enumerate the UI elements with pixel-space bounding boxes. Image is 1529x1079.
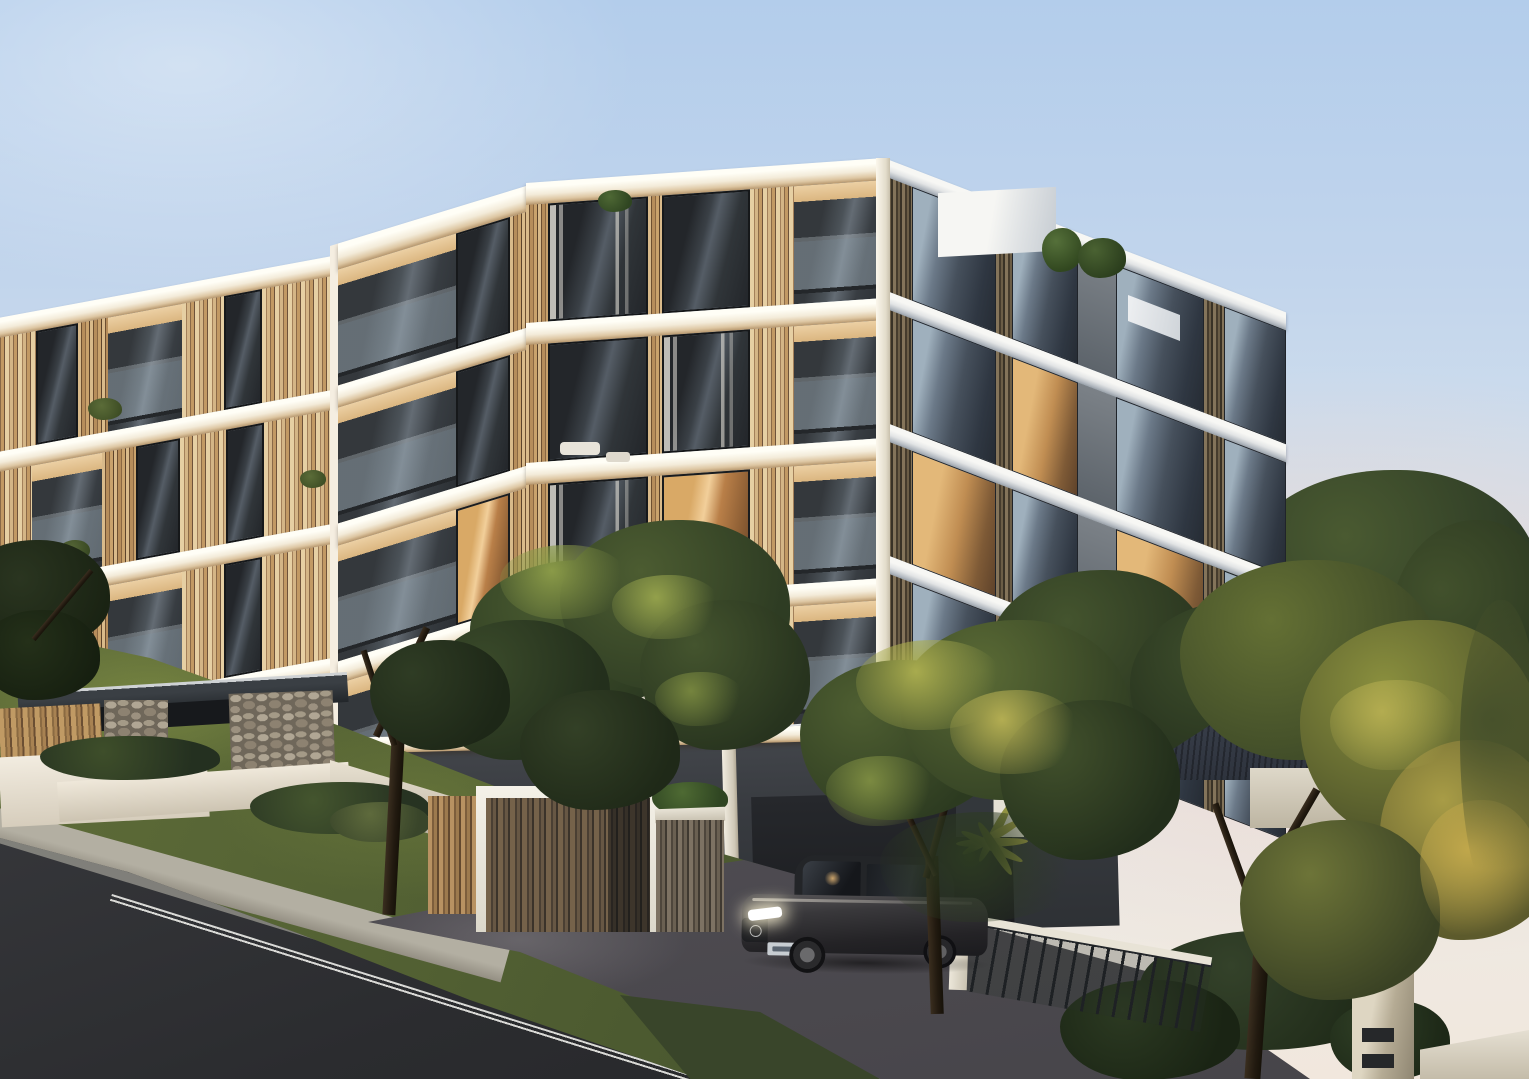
rooftop-shrub	[1042, 228, 1082, 272]
window	[224, 557, 262, 678]
window	[456, 217, 510, 350]
architectural-render	[0, 0, 1529, 1079]
balcony-plant	[88, 398, 122, 420]
balcony	[794, 460, 884, 584]
window-with-curtains	[662, 329, 750, 453]
gate-frame	[476, 786, 660, 932]
timber-batten-screen	[0, 331, 36, 453]
balcony-plant	[300, 470, 326, 488]
tree-canopy-sunlit	[500, 545, 630, 619]
gate-open-gap	[608, 798, 650, 932]
shrub-row	[40, 736, 220, 780]
tree-canopy-sunlit	[655, 672, 745, 726]
timber-batten-screen	[996, 351, 1012, 471]
window	[136, 438, 180, 560]
window	[456, 355, 510, 488]
timber-fence	[428, 796, 480, 914]
grass-tuft	[330, 802, 430, 842]
timber-batten-screen	[102, 446, 136, 566]
tree-canopy	[370, 640, 510, 750]
timber-batten-screen	[182, 564, 224, 686]
timber-batten-screen	[750, 186, 794, 307]
tree-canopy-sunlit	[950, 690, 1080, 774]
timber-batten-screen	[526, 343, 548, 463]
tree-canopy	[1240, 820, 1440, 1000]
timber-batten-screen	[1204, 431, 1224, 553]
timber-batten-screen	[750, 326, 794, 447]
window	[36, 323, 78, 445]
timber-batten-screen	[996, 483, 1012, 603]
window	[224, 289, 262, 410]
balcony	[794, 320, 884, 444]
letterbox-slot	[1362, 1054, 1394, 1068]
slat-fence-panel	[656, 820, 724, 932]
wall-panel	[1078, 382, 1116, 511]
car-headlight	[747, 906, 782, 921]
tree-canopy-sunlit	[1330, 680, 1460, 770]
balcony	[794, 180, 884, 304]
roof-access-box	[938, 187, 1056, 257]
tree-canopy-dark	[1460, 600, 1529, 900]
tree-canopy-sunlit	[612, 575, 722, 639]
balcony-furniture	[606, 452, 630, 462]
timber-batten-screen	[526, 203, 548, 323]
timber-batten-screen	[1204, 299, 1224, 421]
timber-batten-screen	[648, 195, 662, 314]
rooftop-shrub	[1078, 238, 1126, 278]
car-interior-glow	[825, 871, 841, 885]
letterbox-slot	[1362, 1028, 1394, 1042]
timber-batten-screen	[648, 335, 662, 454]
tree-canopy-sunlit	[826, 756, 936, 826]
timber-batten-screen	[182, 296, 224, 418]
tree-canopy-dark	[880, 812, 1080, 922]
car-grille	[742, 918, 768, 942]
timber-batten-screen	[180, 430, 226, 553]
balcony-furniture	[560, 442, 600, 455]
window	[226, 423, 264, 544]
rooftop-shrub	[598, 190, 632, 212]
mercedes-star-icon	[750, 925, 762, 937]
window	[662, 189, 750, 313]
tree-canopy	[520, 690, 680, 810]
window-with-curtains	[548, 196, 648, 321]
